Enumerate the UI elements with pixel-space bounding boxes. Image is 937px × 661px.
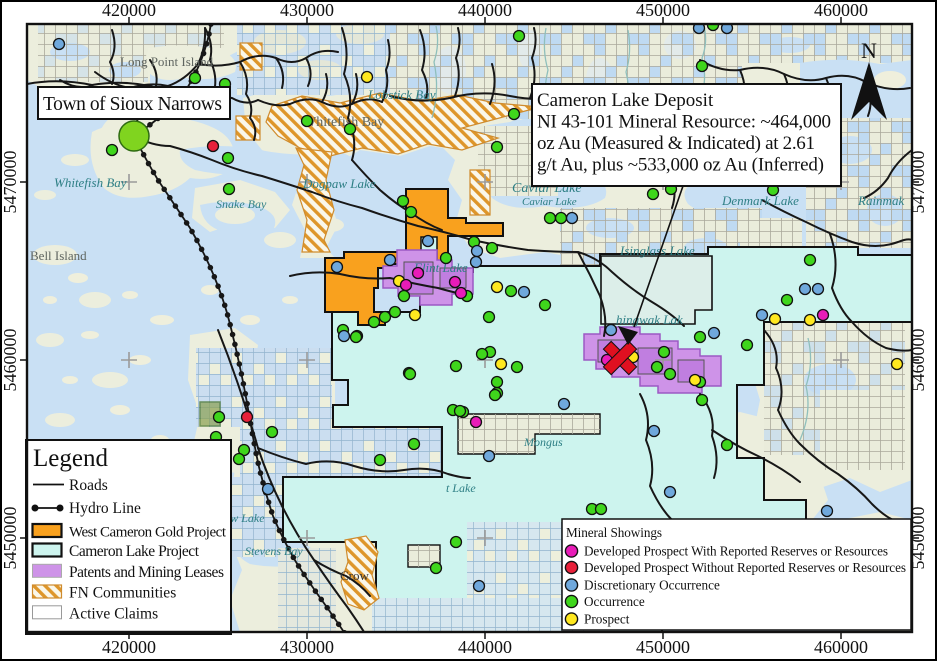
- svg-text:FN Communities: FN Communities: [69, 585, 176, 602]
- svg-text:440000: 440000: [458, 0, 512, 20]
- svg-text:420000: 420000: [102, 0, 156, 20]
- svg-text:N: N: [861, 38, 877, 63]
- svg-text:Crow: Crow: [340, 568, 370, 583]
- svg-text:5450000: 5450000: [908, 507, 928, 570]
- svg-text:Whitefish Bay: Whitefish Bay: [303, 115, 384, 130]
- svg-text:420000: 420000: [102, 637, 156, 657]
- svg-text:Denmark Lake: Denmark Lake: [721, 193, 799, 208]
- svg-text:430000: 430000: [280, 637, 334, 657]
- svg-text:Active Claims: Active Claims: [69, 606, 158, 623]
- svg-text:460000: 460000: [814, 0, 868, 20]
- svg-text:5450000: 5450000: [0, 507, 20, 570]
- svg-text:5470000: 5470000: [0, 151, 20, 214]
- svg-text:Whitefish Bay: Whitefish Bay: [54, 175, 127, 190]
- svg-text:430000: 430000: [280, 0, 334, 20]
- svg-text:440000: 440000: [458, 637, 512, 657]
- svg-text:Lobstick Bay: Lobstick Bay: [367, 87, 436, 102]
- svg-text:Town of Sioux Narrows: Town of Sioux Narrows: [43, 94, 222, 115]
- svg-text:Roads: Roads: [69, 477, 108, 494]
- svg-text:Discretionary Occurrence: Discretionary Occurrence: [584, 578, 720, 593]
- svg-text:Bell Island: Bell Island: [30, 248, 87, 263]
- svg-text:450000: 450000: [636, 637, 690, 657]
- svg-text:West Cameron Gold Project: West Cameron Gold Project: [69, 525, 227, 541]
- svg-text:NI 43-101 Mineral Resource: ~4: NI 43-101 Mineral Resource: ~464,000: [537, 112, 831, 133]
- svg-text:5470000: 5470000: [908, 151, 928, 214]
- svg-text:Cameron Lake Project: Cameron Lake Project: [69, 543, 200, 560]
- svg-text:Mineral Showings: Mineral Showings: [566, 525, 662, 540]
- svg-text:460000: 460000: [814, 637, 868, 657]
- svg-text:Dogpaw Lake: Dogpaw Lake: [302, 176, 376, 191]
- svg-text:Stevens Bay: Stevens Bay: [245, 544, 303, 558]
- svg-text:Occurrence: Occurrence: [584, 594, 645, 609]
- svg-text:Isinglass Lake: Isinglass Lake: [619, 243, 695, 258]
- svg-text:Long Point Island: Long Point Island: [120, 54, 214, 69]
- svg-text:5460000: 5460000: [0, 329, 20, 392]
- svg-text:oz Au (Measured & Indicated) a: oz Au (Measured & Indicated) at 2.61: [537, 133, 815, 154]
- svg-text:Hydro Line: Hydro Line: [69, 500, 141, 517]
- svg-text:Rainmak: Rainmak: [857, 193, 904, 208]
- svg-text:Prospect: Prospect: [584, 612, 630, 627]
- svg-text:450000: 450000: [636, 0, 690, 20]
- svg-text:g/t Au, plus ~533,000 oz Au (I: g/t Au, plus ~533,000 oz Au (Inferred): [537, 155, 824, 176]
- svg-text:Patents and Mining Leases: Patents and Mining Leases: [69, 564, 224, 581]
- svg-text:Cameron Lake Deposit: Cameron Lake Deposit: [537, 90, 714, 111]
- svg-text:Developed Prospect With Report: Developed Prospect With Reported Reserve…: [584, 544, 888, 559]
- svg-text:5460000: 5460000: [908, 329, 928, 392]
- svg-text:Mongus: Mongus: [523, 435, 563, 449]
- svg-text:Developed Prospect Without Rep: Developed Prospect Without Reported Rese…: [584, 560, 906, 575]
- svg-text:t Lake: t Lake: [446, 481, 476, 495]
- svg-text:Legend: Legend: [33, 445, 108, 472]
- svg-text:Snake Bay: Snake Bay: [216, 197, 267, 211]
- svg-text:Caviar Lake: Caviar Lake: [522, 196, 577, 208]
- svg-text:hingwak Lak: hingwak Lak: [616, 312, 683, 327]
